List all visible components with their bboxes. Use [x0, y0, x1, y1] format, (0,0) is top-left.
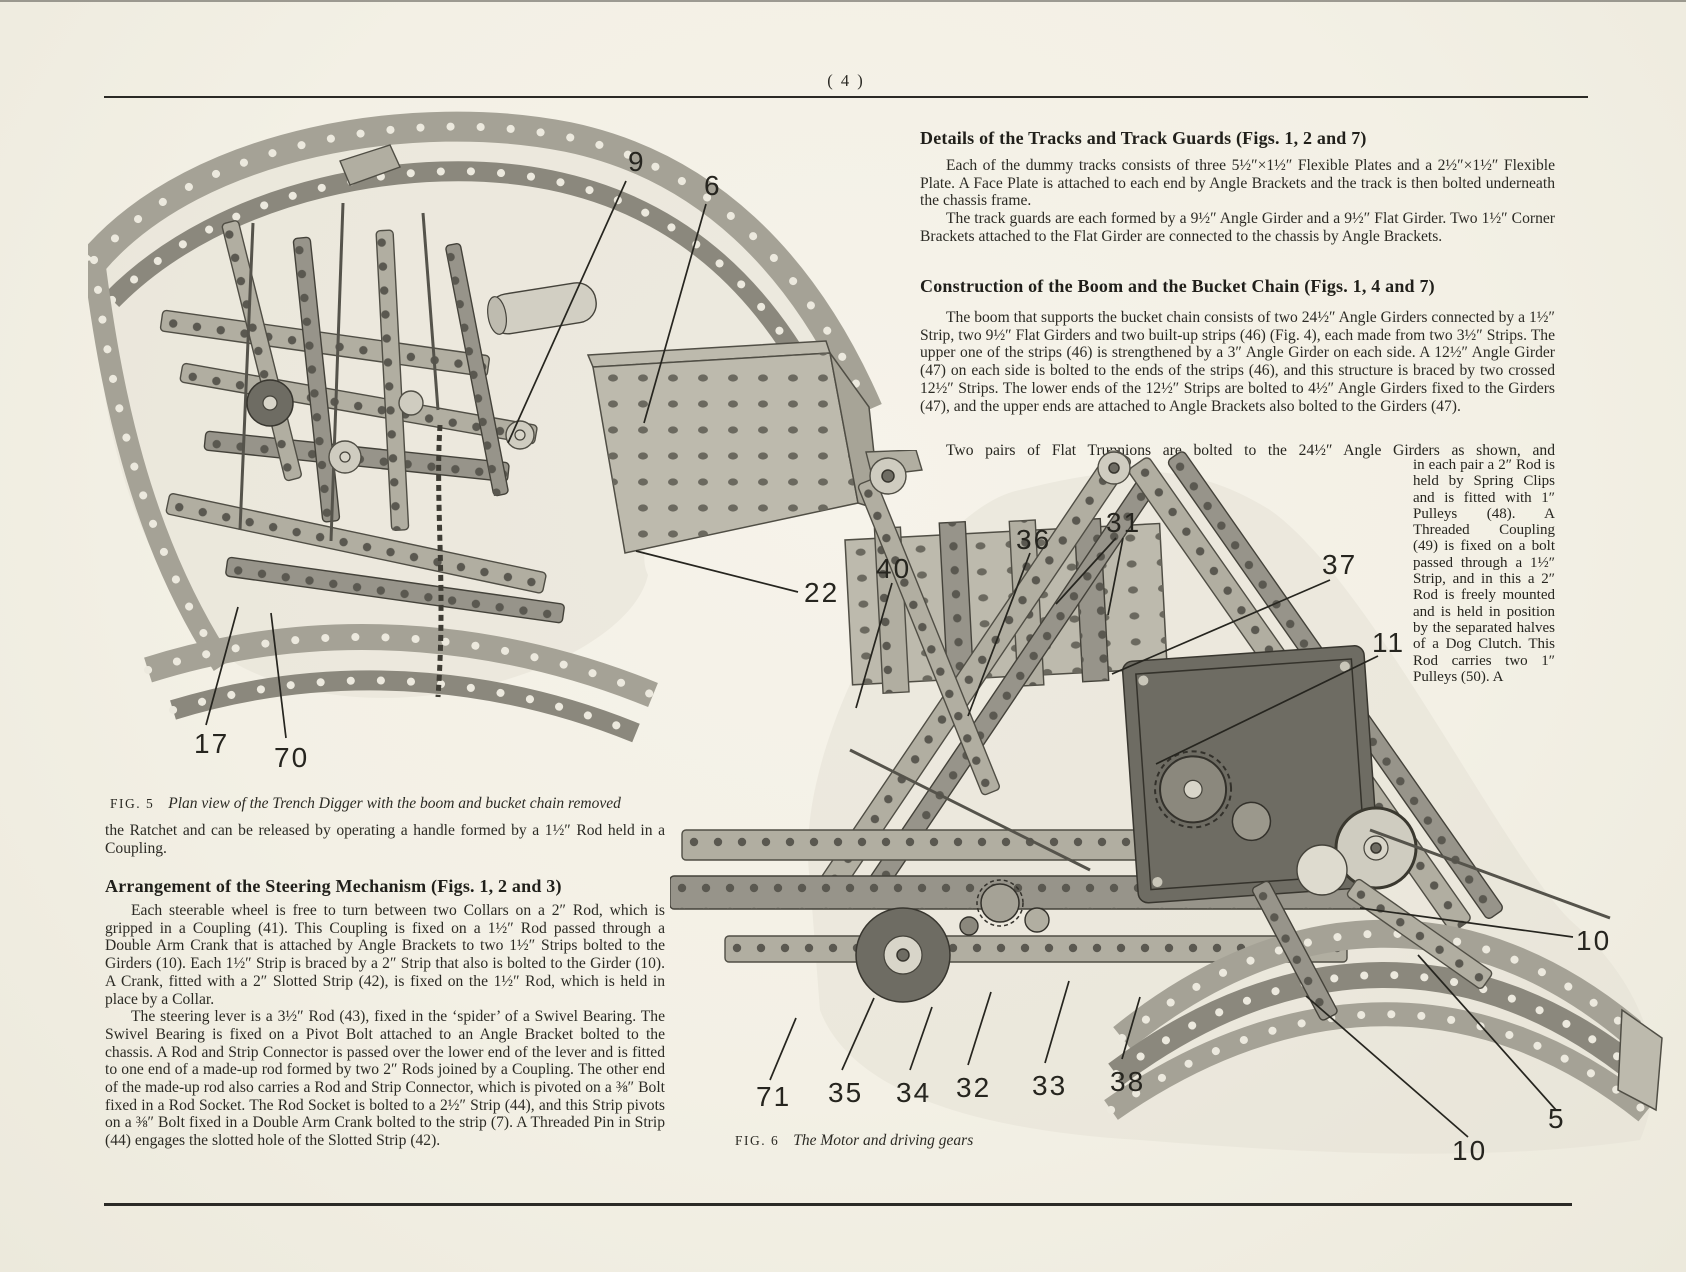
heading-steering: Arrangement of the Steering Mechanism (F…	[105, 876, 665, 897]
steering-para-1: Each steerable wheel is free to turn bet…	[105, 902, 665, 1008]
ratchet-paragraph: the Ratchet and can be released by opera…	[105, 822, 665, 857]
fig5-callout-9: 9	[628, 146, 646, 177]
fig6-illustration: 40 36 31 37 11 10 5 10 71 35 34 32 33 38	[670, 450, 1680, 1165]
manual-page: ( 4 )	[0, 0, 1686, 1272]
fig6-callout-40: 40	[876, 553, 911, 584]
heading-boom: Construction of the Boom and the Bucket …	[920, 276, 1555, 297]
fig5-caption-text: Plan view of the Trench Digger with the …	[168, 795, 621, 812]
scan-edge-top	[0, 0, 1686, 2]
fig6-caption-text: The Motor and driving gears	[793, 1132, 973, 1149]
fig5-caption-label: FIG. 5	[110, 796, 154, 811]
fig6-machine-art	[670, 450, 1662, 1154]
fig6-callout-31: 31	[1106, 507, 1141, 538]
fig6-callout-10-right: 10	[1576, 925, 1611, 956]
fig6-callout-37: 37	[1322, 549, 1357, 580]
tracks-para-2: The track guards are each formed by a 9½…	[920, 210, 1555, 245]
fig6-callout-34: 34	[896, 1077, 931, 1108]
page-number: ( 4 )	[105, 71, 1587, 91]
tracks-paragraphs: Each of the dummy tracks consists of thr…	[920, 157, 1555, 246]
heading-tracks: Details of the Tracks and Track Guards (…	[920, 128, 1555, 149]
fig6-callout-33: 33	[1032, 1070, 1067, 1101]
footer-rule	[104, 1203, 1572, 1206]
fig6-callout-32: 32	[956, 1072, 991, 1103]
fig6-callout-35: 35	[828, 1077, 863, 1108]
fig6-callout-11: 11	[1372, 627, 1405, 658]
fig6-callout-71: 71	[756, 1081, 791, 1112]
fig6-callout-36: 36	[1016, 524, 1051, 555]
fig6-caption: FIG. 6The Motor and driving gears	[735, 1132, 1155, 1150]
steering-para-2: The steering lever is a 3½″ Rod (43), fi…	[105, 1008, 665, 1150]
fig5-caption: FIG. 5Plan view of the Trench Digger wit…	[110, 795, 670, 813]
tracks-para-1: Each of the dummy tracks consists of thr…	[920, 157, 1555, 210]
fig6-callout-38: 38	[1110, 1066, 1145, 1097]
fig5-callout-70: 70	[274, 742, 309, 770]
fig6-callout-10-bottom: 10	[1452, 1135, 1487, 1165]
fig5-callout-6: 6	[704, 170, 722, 201]
boom-paragraph-1: The boom that supports the bucket chain …	[920, 309, 1555, 415]
fig6-caption-label: FIG. 6	[735, 1133, 779, 1148]
steering-paragraphs: Each steerable wheel is free to turn bet…	[105, 902, 665, 1150]
header-rule	[104, 96, 1588, 98]
fig5-callout-17: 17	[194, 728, 229, 759]
fig6-callout-5: 5	[1548, 1103, 1566, 1134]
